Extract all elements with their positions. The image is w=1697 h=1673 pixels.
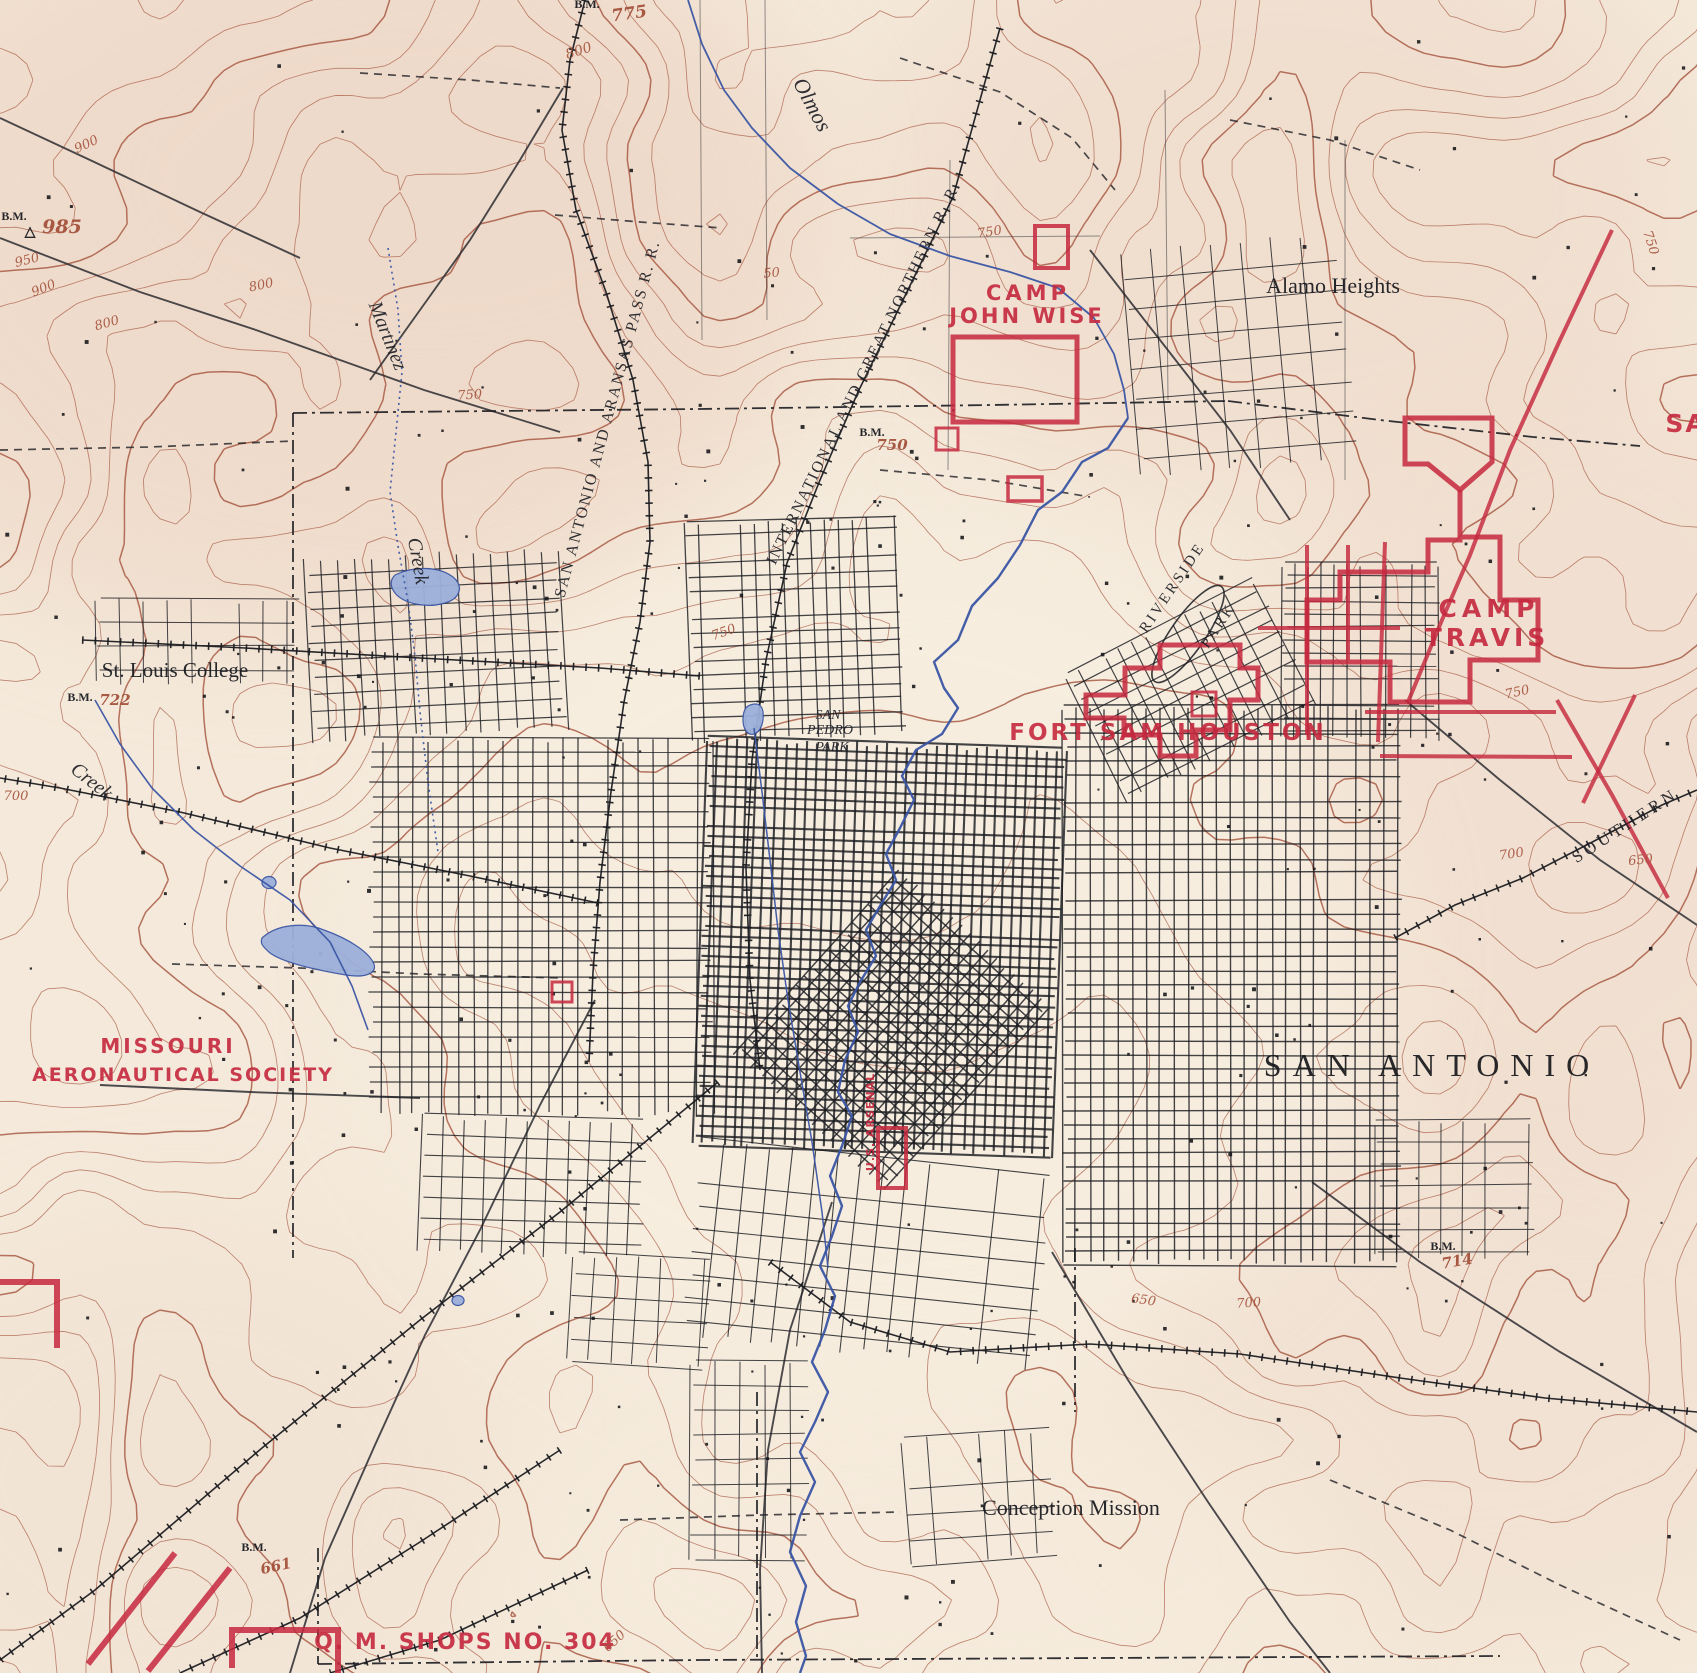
map-label-missouri-2: AERONAUTICAL SOCIETY bbox=[32, 1064, 334, 1086]
map-label-contour-650-a: 650 bbox=[1628, 852, 1654, 870]
map-label-camp-travis-2: TRAVIS bbox=[1425, 623, 1550, 652]
map-label-san-antonio: SAN ANTONIO bbox=[1264, 1047, 1600, 1083]
map-label-bm-985-bm: B.M. bbox=[1, 209, 26, 223]
map-stage: San Antonio, Texas — topographic quadran… bbox=[0, 0, 1697, 1673]
map-label-bm-750-val: 750 bbox=[876, 436, 908, 454]
map-label-contour-700-b: 700 bbox=[4, 789, 29, 804]
map-label-camp-john-wise-2: JOHN WISE bbox=[947, 304, 1105, 328]
pond-b bbox=[452, 1295, 464, 1305]
map-label-conception-mission: Conception Mission bbox=[982, 1495, 1160, 1520]
map-label-camp-sa-partial: SA bbox=[1665, 409, 1697, 438]
map-label-bm-775-bm: B.M. bbox=[574, 0, 599, 11]
map-label-missouri-1: MISSOURI bbox=[100, 1034, 235, 1058]
map-label-camp-john-wise-1: CAMP bbox=[986, 281, 1070, 305]
map-label-st-louis-college: St. Louis College bbox=[102, 658, 248, 682]
map-label-san-pedro-3: PARK bbox=[814, 740, 849, 755]
map-label-bm-714-bm: B.M. bbox=[1430, 1239, 1455, 1253]
san-antonio-topo-map: B.M.775800Olmos750900B.M.△98595090080080… bbox=[0, 0, 1697, 1673]
map-label-contour-50: 50 bbox=[763, 265, 781, 281]
map-label-bm-722-val: 722 bbox=[99, 691, 130, 709]
red-road bbox=[1380, 756, 1572, 757]
map-label-fort-sam-houston: FORT SAM HOUSTON bbox=[1009, 720, 1326, 746]
map-label-alamo-heights: Alamo Heights bbox=[1266, 273, 1400, 298]
map-label-camp-travis-1: CAMP bbox=[1439, 594, 1540, 623]
map-label-contour-700-c: 700 bbox=[1236, 1295, 1262, 1312]
paper-layer bbox=[0, 0, 1697, 1673]
san-pedro-springs bbox=[743, 704, 763, 734]
map-label-bm-985-val: 985 bbox=[42, 216, 82, 238]
map-label-bm-722-bm: B.M. bbox=[67, 690, 92, 704]
map-label-san-pedro-1: SAN bbox=[816, 708, 842, 723]
map-label-qm-shops: Q. M. SHOPS NO. 304 bbox=[314, 1630, 616, 1655]
map-label-bm-985-tri: △ bbox=[24, 225, 37, 240]
map-label-us-arsenal: U.S. ARSENAL bbox=[864, 1073, 877, 1171]
map-label-contour-750-b: 750 bbox=[457, 387, 483, 404]
map-label-bm-661-bm: B.M. bbox=[241, 1540, 266, 1554]
map-label-san-pedro-2: PEDRO bbox=[806, 723, 853, 738]
